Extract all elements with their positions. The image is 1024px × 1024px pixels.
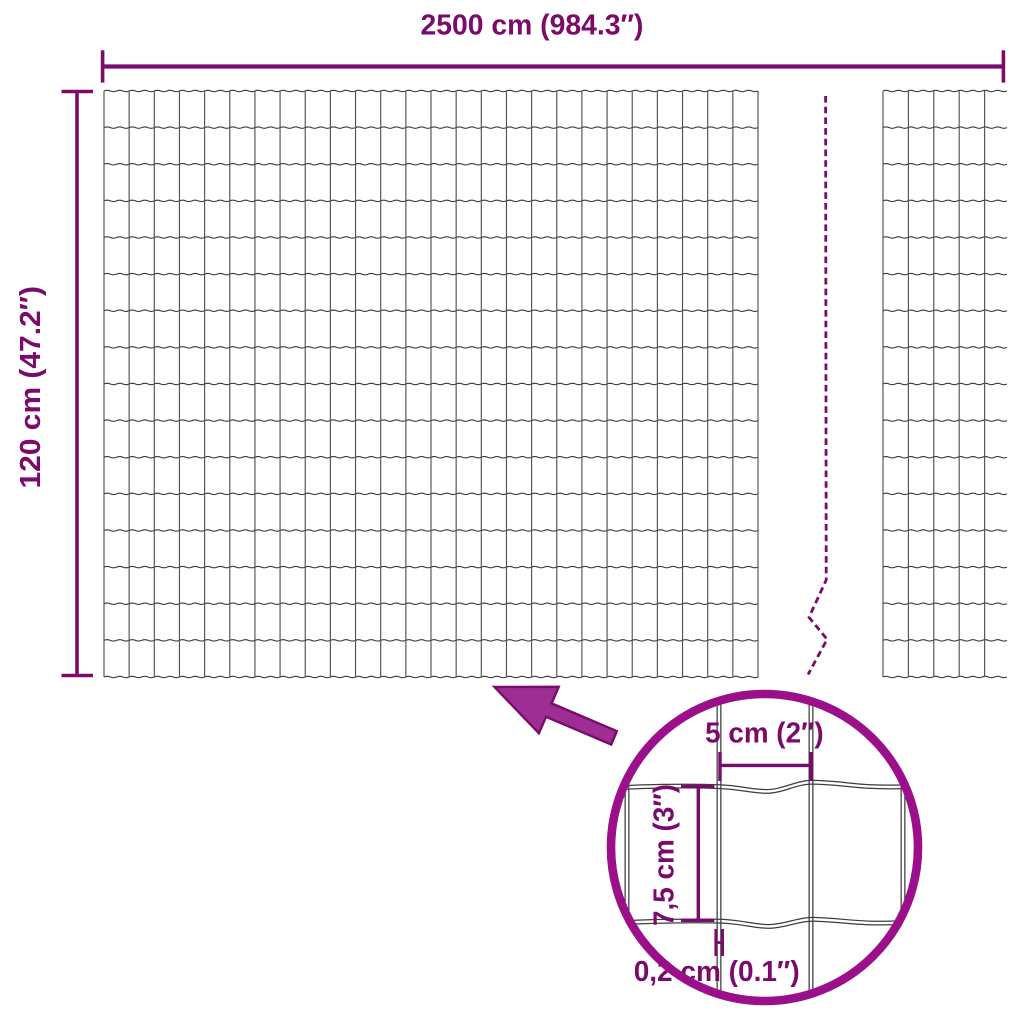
svg-text:7,5 cm (3″): 7,5 cm (3″) [648, 784, 680, 926]
svg-text:2500 cm (984.3″): 2500 cm (984.3″) [421, 8, 644, 40]
svg-text:5 cm (2″): 5 cm (2″) [705, 717, 824, 749]
svg-text:120 cm (47.2″): 120 cm (47.2″) [14, 286, 46, 489]
